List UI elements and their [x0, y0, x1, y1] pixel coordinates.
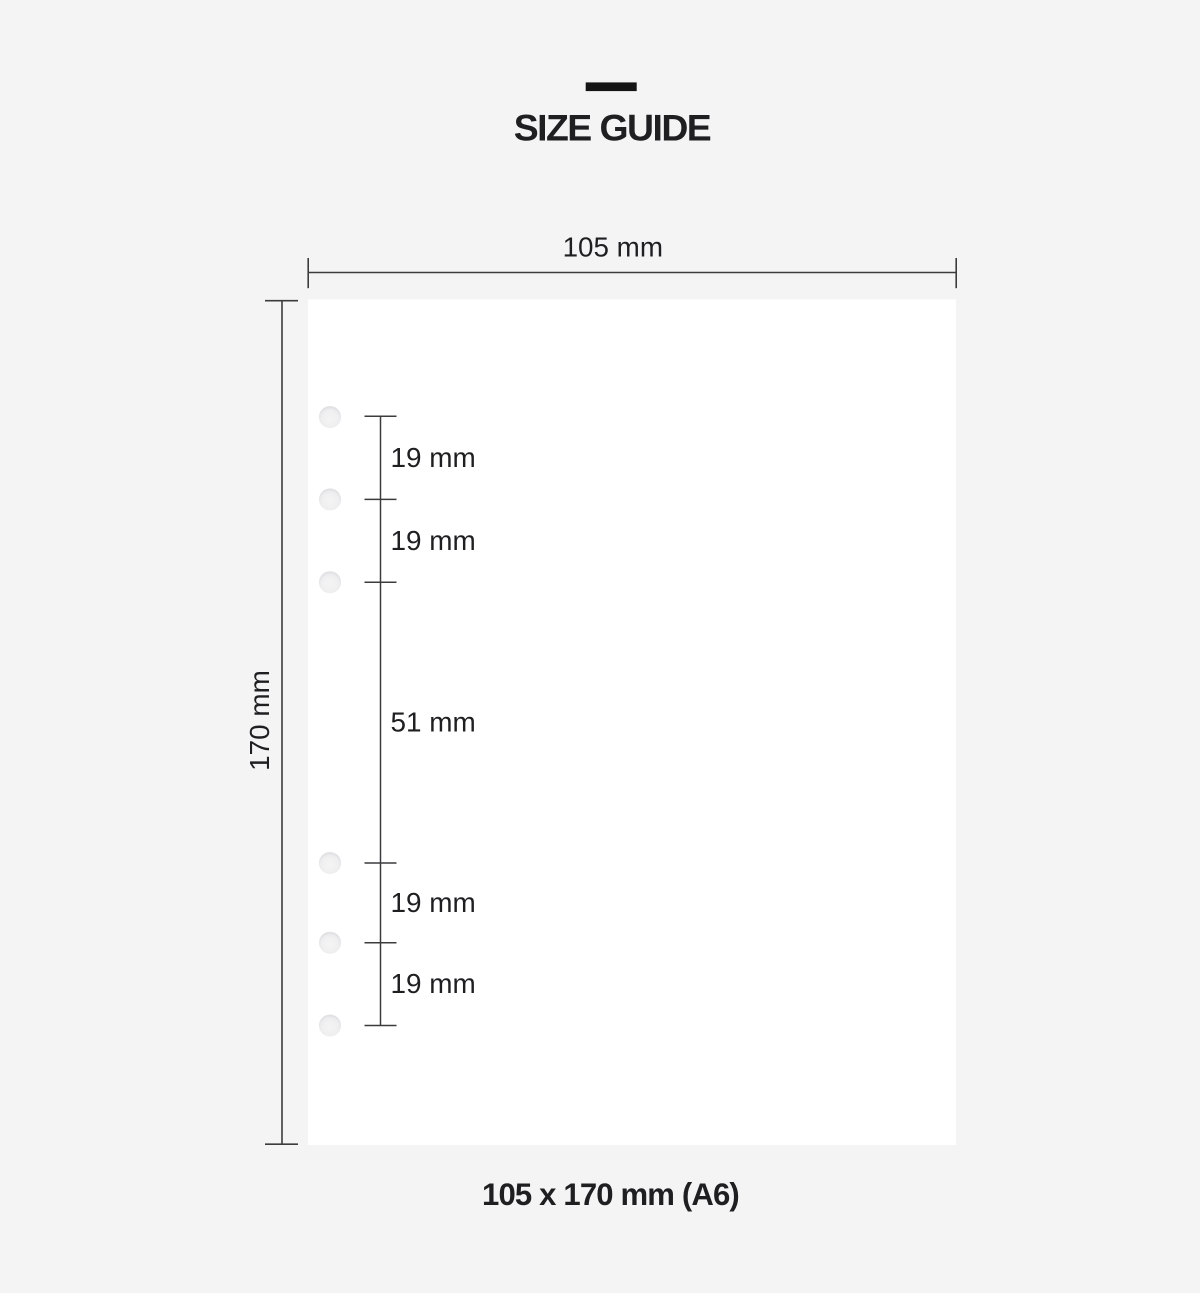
svg-text:19 mm: 19 mm — [391, 442, 476, 473]
svg-text:105 x 170 mm (A6): 105 x 170 mm (A6) — [482, 1177, 739, 1212]
svg-text:19 mm: 19 mm — [391, 968, 476, 999]
svg-text:SIZE GUIDE: SIZE GUIDE — [514, 107, 711, 149]
svg-text:19 mm: 19 mm — [391, 525, 476, 556]
svg-text:19 mm: 19 mm — [391, 887, 476, 918]
svg-text:51 mm: 51 mm — [391, 707, 476, 738]
svg-text:170 mm: 170 mm — [244, 670, 275, 771]
svg-text:105 mm: 105 mm — [563, 231, 663, 262]
